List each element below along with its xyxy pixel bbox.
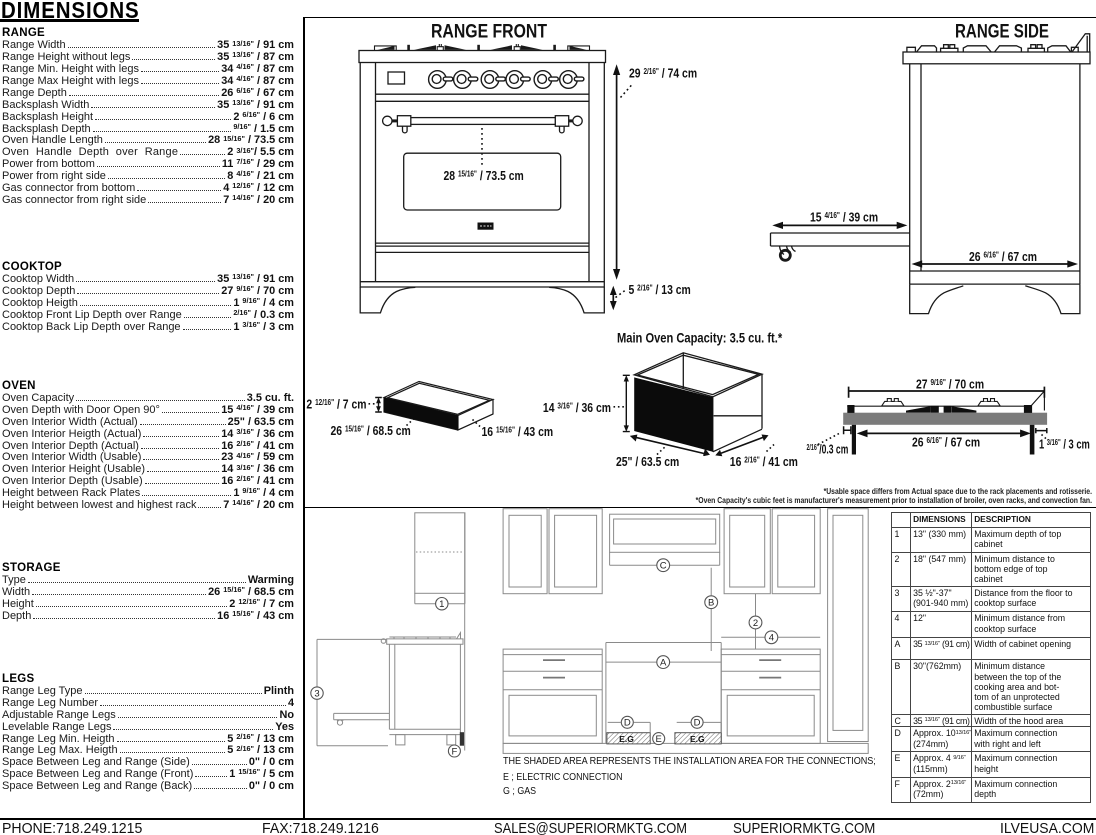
svg-text:F: F — [451, 746, 457, 757]
svg-text:4: 4 — [769, 633, 774, 644]
svg-text:2/16"/0.3 cm: 2/16"/0.3 cm — [807, 443, 849, 457]
svg-text:5 2/16" / 13 cm: 5 2/16" / 13 cm — [629, 283, 691, 298]
svg-text:RANGE SIDE: RANGE SIDE — [955, 21, 1049, 43]
svg-text:29 2/16" / 74 cm: 29 2/16" / 74 cm — [629, 66, 697, 81]
svg-text:D: D — [624, 718, 631, 729]
svg-text:28 15/16" / 73.5 cm: 28 15/16" / 73.5 cm — [444, 169, 524, 184]
svg-text:E: E — [656, 734, 662, 745]
svg-text:B: B — [708, 598, 714, 609]
svg-text:3: 3 — [314, 689, 319, 700]
svg-text:RANGE FRONT: RANGE FRONT — [431, 21, 547, 43]
svg-text:1 3/16" / 3 cm: 1 3/16" / 3 cm — [1039, 438, 1090, 452]
svg-text:16 2/16" / 41 cm: 16 2/16" / 41 cm — [730, 455, 798, 470]
svg-text:26 6/16" / 67 cm: 26 6/16" / 67 cm — [912, 435, 980, 450]
svg-text:D: D — [694, 718, 701, 729]
svg-text:26 15/16" / 68.5 cm: 26 15/16" / 68.5 cm — [331, 424, 411, 439]
svg-text:25" / 63.5 cm: 25" / 63.5 cm — [616, 455, 679, 469]
svg-text:2: 2 — [753, 618, 758, 629]
svg-text:A: A — [660, 658, 667, 669]
svg-text:1: 1 — [439, 599, 444, 610]
svg-text:2 12/16" / 7 cm: 2 12/16" / 7 cm — [306, 397, 366, 412]
svg-text:Main Oven Capacity: 3.5 cu. ft: Main Oven Capacity: 3.5 cu. ft.* — [617, 329, 782, 346]
svg-text:E.G: E.G — [619, 734, 634, 744]
svg-text:16 15/16" / 43 cm: 16 15/16" / 43 cm — [482, 425, 554, 440]
svg-text:26 6/16" / 67 cm: 26 6/16" / 67 cm — [969, 250, 1037, 265]
svg-text:15 4/16" / 39 cm: 15 4/16" / 39 cm — [810, 210, 878, 225]
svg-text:E.G: E.G — [690, 734, 705, 744]
svg-text:14 3/16" / 36 cm: 14 3/16" / 36 cm — [543, 401, 611, 416]
svg-text:C: C — [660, 561, 667, 572]
svg-text:27 9/16" / 70 cm: 27 9/16" / 70 cm — [916, 377, 984, 392]
